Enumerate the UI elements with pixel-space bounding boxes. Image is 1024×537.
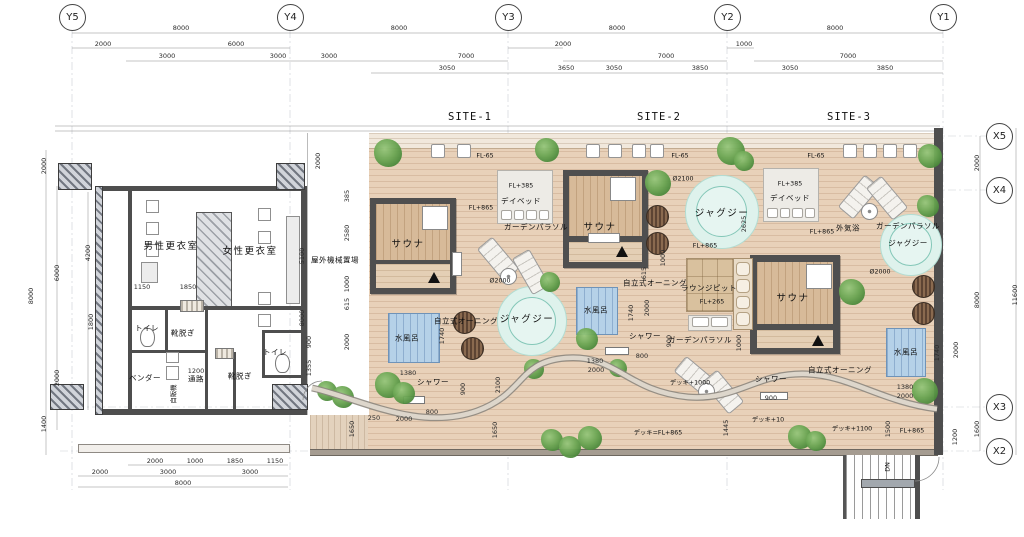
fixture-sq	[258, 314, 271, 327]
dimension-label: 3050	[782, 64, 799, 72]
annotation-label: FL-65	[671, 153, 688, 160]
dimension-label: 4200	[84, 245, 92, 262]
shower-fixture	[605, 347, 629, 355]
dimension-label: 900	[459, 383, 467, 395]
dimension-label: 6000	[228, 40, 245, 48]
dimension-label: 2000	[588, 366, 605, 374]
sauna3-door-marker	[812, 335, 824, 346]
annotation-label: サウナ	[583, 219, 616, 233]
dimension-label: 7000	[840, 52, 857, 60]
annotation-label: サウナ	[391, 236, 424, 250]
fixture-mat	[180, 300, 204, 312]
grid-bubble-x2: X2	[986, 438, 1013, 465]
annotation-label: FL-65	[807, 153, 824, 160]
dimension-label: 1380	[587, 357, 604, 365]
dimension-label: 2580	[343, 225, 351, 242]
sauna1-bench	[422, 206, 448, 230]
dimension-label: 3050	[606, 64, 623, 72]
column-nw	[58, 163, 92, 190]
annotation-label: FL+865	[900, 428, 924, 435]
fixture-mat	[215, 348, 234, 359]
dimension-label: 2000	[897, 392, 914, 400]
dimension-label: 5100	[298, 248, 306, 265]
dimension-label: 2000	[643, 300, 651, 317]
column-se	[272, 384, 308, 410]
annotation-label: FL+865	[693, 243, 717, 250]
annotation-label: FL+265	[700, 299, 724, 306]
annotation-label: 靴脱ぎ	[171, 328, 195, 339]
annotation-label: 女性更衣室	[222, 243, 277, 257]
outdoor-machine-yard	[307, 133, 369, 415]
grid-bubble-y5: Y5	[59, 4, 86, 31]
annotation-label: 通路	[188, 374, 204, 385]
fixture-counter	[141, 262, 158, 283]
fixture-shelf	[452, 252, 462, 276]
annotation-label: 自販機	[169, 385, 178, 404]
site-3-label: SITE-3	[827, 111, 871, 123]
garden-parasol	[861, 203, 878, 220]
annotation-label: デイベッド	[770, 193, 810, 204]
stool	[883, 144, 897, 158]
dimension-label: 800	[426, 408, 438, 416]
dimension-label: 3000	[159, 52, 176, 60]
dimension-label: 900	[765, 394, 777, 402]
annotation-label: トイレ	[263, 347, 287, 358]
annotation-label: ガーデンパラソル	[876, 221, 940, 232]
annotation-label: FL+385	[509, 183, 533, 190]
dimension-label: 3850	[692, 64, 709, 72]
building-apron	[78, 444, 290, 453]
barrel-chair	[912, 275, 935, 298]
stair-landing	[861, 479, 915, 488]
column-sw	[50, 384, 84, 410]
annotation-label: 自立式オーニング	[808, 365, 872, 376]
annotation-label: Ø2100	[673, 176, 694, 183]
dimension-label: 2000	[952, 342, 960, 359]
dimension-label: 8000	[27, 288, 35, 305]
stool	[843, 144, 857, 158]
dimension-label: 2000	[396, 415, 413, 423]
annotation-label: デッキ=FL+865	[634, 428, 683, 437]
annotation-label: 自立式オーニング	[434, 316, 498, 327]
annotation-label: シャワー	[755, 374, 787, 385]
dimension-label: 1445	[722, 420, 730, 437]
stool	[608, 144, 622, 158]
tree	[918, 144, 942, 168]
annotation-label: デッキ+1100	[832, 424, 872, 433]
dimension-label: 8000	[391, 24, 408, 32]
tree	[917, 195, 939, 217]
dimension-label: 1850	[227, 457, 244, 465]
tree	[645, 170, 671, 196]
tree	[393, 382, 415, 404]
dimension-label: 1740	[933, 345, 941, 362]
stool	[632, 144, 646, 158]
column-ne	[276, 163, 305, 190]
tree	[912, 378, 938, 404]
dimension-label: 11600	[1011, 285, 1019, 306]
sauna1-door-marker	[428, 272, 440, 283]
annotation-label: 外気浴	[836, 223, 860, 234]
grid-bubble-x5: X5	[986, 123, 1013, 150]
partition-5	[262, 330, 307, 333]
tree	[578, 426, 602, 450]
building-left-wall	[95, 186, 103, 415]
grid-bubble-y1: Y1	[930, 4, 957, 31]
annotation-label: 屋外機械置場	[311, 255, 359, 266]
annotation-label: デッキ+1000	[670, 378, 710, 387]
tree	[535, 138, 559, 162]
fixture-sq	[146, 222, 159, 235]
annotation-label: 水風呂	[584, 305, 608, 316]
annotation-label: デッキ+10	[752, 415, 784, 424]
dimension-label: 6000	[53, 265, 61, 282]
dimension-label: 8000	[175, 479, 192, 487]
dimension-label: 8000	[298, 310, 306, 327]
sauna2-vestibule	[569, 242, 642, 262]
dimension-label: 7000	[658, 52, 675, 60]
annotation-label: ラウンジピット	[681, 283, 737, 294]
dimension-label: 2000	[314, 153, 322, 170]
lounge-pit-pillows	[688, 315, 732, 331]
entrance-porch	[310, 415, 368, 452]
annotation-label: ジャグジー	[500, 311, 555, 325]
stool	[650, 144, 664, 158]
dimension-label: 3000	[242, 468, 259, 476]
dimension-label: 2000	[555, 40, 572, 48]
tree	[540, 272, 560, 292]
tree	[734, 151, 754, 171]
tree	[576, 328, 598, 350]
dimension-label: 2000	[147, 457, 164, 465]
annotation-label: ジャグジー	[888, 238, 928, 249]
stool	[586, 144, 600, 158]
dimension-label: 1000	[736, 40, 753, 48]
dimension-label: 2100	[494, 377, 502, 394]
tree	[839, 279, 865, 305]
tree	[609, 359, 627, 377]
grid-bubble-y2: Y2	[714, 4, 741, 31]
tree	[806, 431, 826, 451]
annotation-label: DN	[885, 462, 892, 472]
fixture-sq	[258, 292, 271, 305]
annotation-label: 自立式オーニング	[623, 278, 687, 289]
tree	[524, 359, 544, 379]
dimension-label: 8000	[609, 24, 626, 32]
dimension-label: 250	[368, 414, 380, 422]
dimension-label: 3000	[160, 468, 177, 476]
dimension-label: 3050	[439, 64, 456, 72]
barrel-chair	[912, 302, 935, 325]
lounge-pit-bench	[733, 258, 753, 330]
stool	[457, 144, 471, 158]
dimension-label: 3000	[270, 52, 287, 60]
dimension-label: 1355	[305, 360, 313, 377]
annotation-label: ガーデンパラソル	[504, 222, 568, 233]
dimension-label: 1200	[951, 429, 959, 446]
annotation-label: ジャグジー	[695, 205, 750, 219]
stool	[903, 144, 917, 158]
dimension-label: 2000	[95, 40, 112, 48]
site-2-label: SITE-2	[637, 111, 681, 123]
annotation-label: Ø2000	[870, 269, 891, 276]
dimension-label: 1650	[491, 422, 499, 439]
tree	[332, 386, 354, 408]
site-1-label: SITE-1	[448, 111, 492, 123]
dimension-label: 2000	[973, 155, 981, 172]
annotation-label: ガーデンパラソル	[668, 335, 732, 346]
stool	[431, 144, 445, 158]
annotation-label: シャワー	[417, 377, 449, 388]
dimension-label: 2000	[40, 158, 48, 175]
dimension-label: 1650	[348, 421, 356, 438]
dimension-label: 900	[305, 336, 313, 348]
sauna3-bench	[806, 264, 832, 289]
annotation-label: 男性更衣室	[143, 238, 198, 252]
dimension-label: 2000	[343, 334, 351, 351]
dimension-label: 1850	[180, 283, 197, 291]
dimension-label: 1800	[87, 314, 95, 331]
annotation-label: Ø2000	[490, 278, 511, 285]
dimension-label: 1000	[735, 335, 743, 352]
dimension-label: 1000	[659, 250, 667, 267]
dimension-label: 615	[343, 298, 351, 310]
annotation-label: 水風呂	[395, 333, 419, 344]
annotation-label: サウナ	[776, 290, 809, 304]
dimension-label: 3650	[558, 64, 575, 72]
dimension-label: 3850	[877, 64, 894, 72]
dimension-label: 1600	[973, 421, 981, 438]
stool	[863, 144, 877, 158]
annotation-label: ベンダー	[129, 373, 161, 384]
daybed1-pillows	[501, 210, 549, 220]
dimension-label: 3000	[321, 52, 338, 60]
dimension-label: 1380	[897, 383, 914, 391]
dimension-label: 8000	[827, 24, 844, 32]
dimension-label: 1400	[40, 416, 48, 433]
dimension-label: 1740	[438, 328, 446, 345]
locker-bank	[196, 212, 232, 308]
dimension-label: 1150	[267, 457, 284, 465]
annotation-label: FL+865	[810, 229, 834, 236]
annotation-label: 靴脱ぎ	[228, 371, 252, 382]
grid-bubble-x3: X3	[986, 394, 1013, 421]
floor-plan: Y5 Y4 Y3 Y2 Y1 X5 X4 X3 X2 SITE-1 SITE-2…	[0, 0, 1024, 537]
building-right-wall	[301, 186, 307, 415]
fixture-sq	[258, 208, 271, 221]
annotation-label: トイレ	[135, 323, 159, 334]
sauna2-bench	[610, 177, 636, 201]
dimension-label: 800	[636, 352, 648, 360]
stair-right-wall	[915, 455, 920, 519]
dimension-label: 1380	[400, 369, 417, 377]
dimension-label: 1150	[134, 283, 151, 291]
dimension-label: 8000	[973, 292, 981, 309]
fixture-shelf	[588, 233, 620, 243]
fixture-sq	[166, 352, 179, 363]
annotation-label: 水風呂	[894, 347, 918, 358]
barrel-chair	[646, 205, 669, 228]
annotation-label: FL-65	[476, 153, 493, 160]
grid-bubble-y3: Y3	[495, 4, 522, 31]
sauna-site3	[750, 255, 840, 354]
annotation-label: FL+385	[778, 181, 802, 188]
dimension-label: 2000	[92, 468, 109, 476]
sauna2-door-marker	[616, 246, 628, 257]
dimension-label: 1500	[884, 421, 892, 438]
fixture-sq	[166, 366, 179, 380]
dimension-label: 2000	[53, 370, 61, 387]
partition-7	[262, 375, 307, 378]
grid-bubble-y4: Y4	[277, 4, 304, 31]
barrel-chair	[461, 337, 484, 360]
deck-right-wall	[934, 128, 943, 455]
dimension-label: 7000	[458, 52, 475, 60]
grid-bubble-x4: X4	[986, 177, 1013, 204]
dimension-label: 8000	[173, 24, 190, 32]
annotation-label: シャワー	[629, 331, 661, 342]
fixture-sq	[146, 200, 159, 213]
dimension-label: 1000	[187, 457, 204, 465]
partition-3	[205, 310, 208, 410]
tree	[374, 139, 402, 167]
dimension-label: 1740	[627, 305, 635, 322]
dimension-label: 385	[343, 190, 351, 202]
building-mid-wall	[128, 306, 307, 310]
dimension-label: 1000	[343, 276, 351, 293]
annotation-label: FL+865	[469, 205, 493, 212]
annotation-label: デイベッド	[501, 196, 541, 207]
daybed2-pillows	[767, 208, 815, 218]
partition-1	[165, 310, 168, 352]
